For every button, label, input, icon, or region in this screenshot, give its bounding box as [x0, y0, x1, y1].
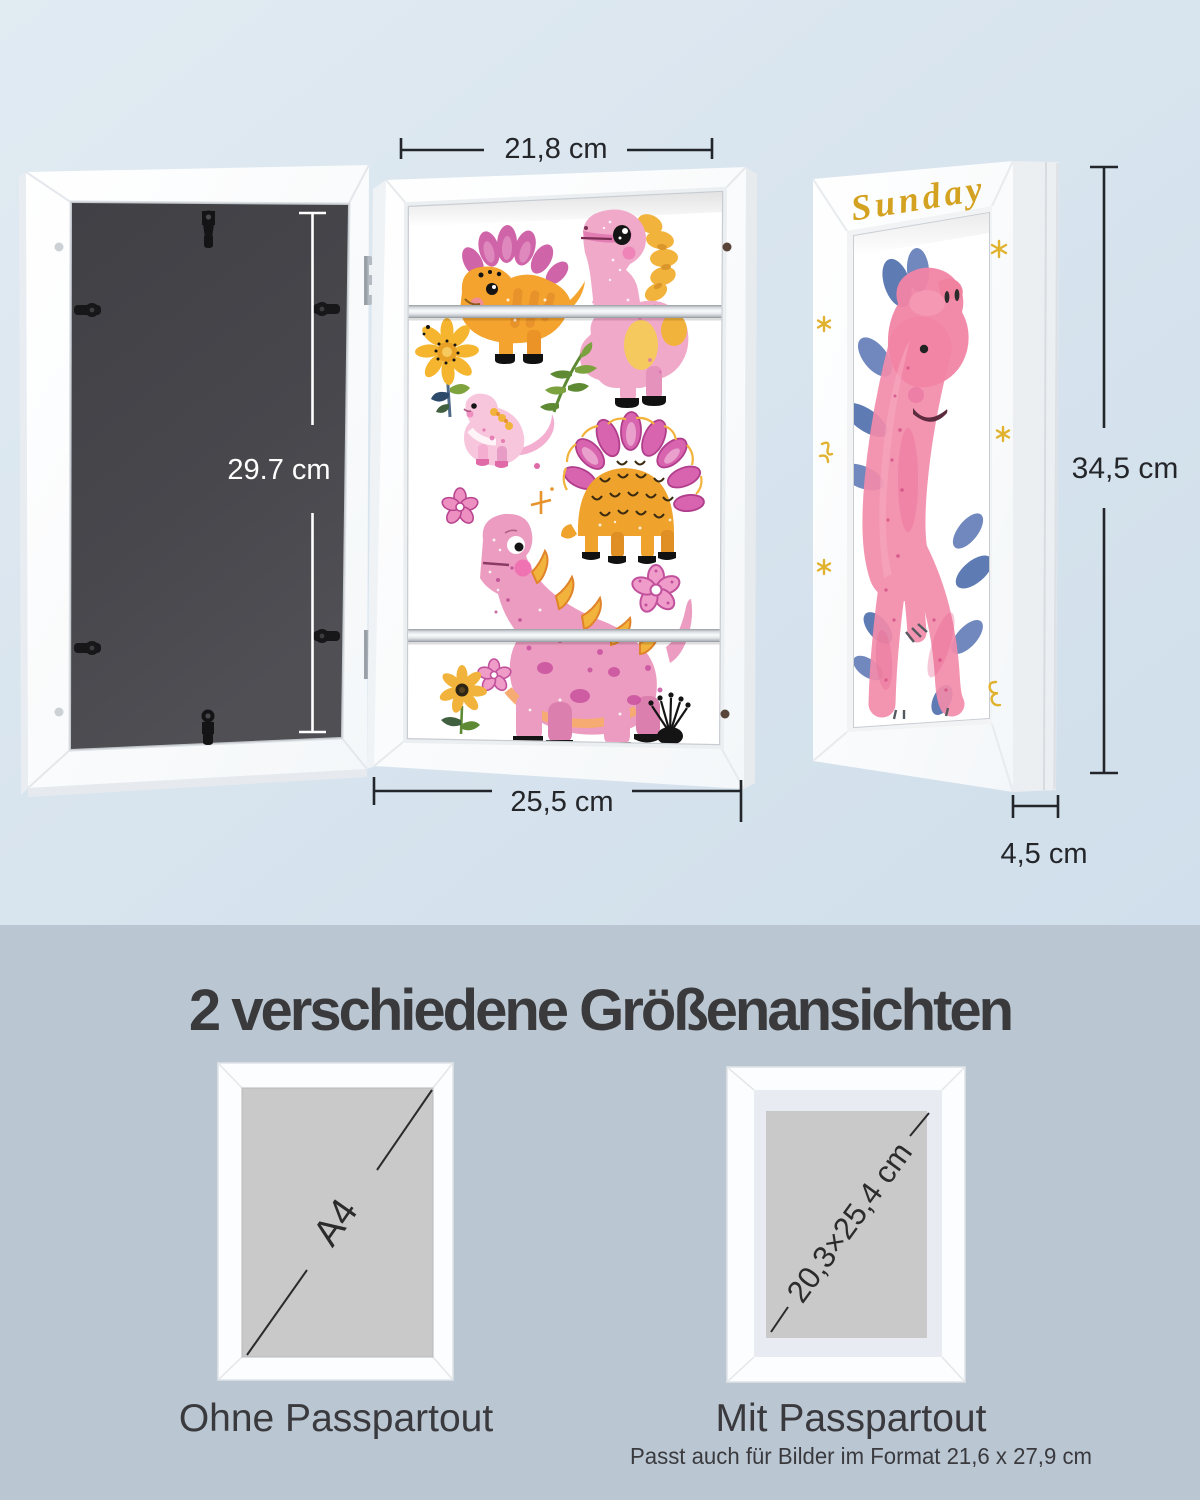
svg-text:2 verschiedene Größenansichten: 2 verschiedene Größenansichten [189, 978, 1011, 1043]
svg-text:34,5 cm: 34,5 cm [1072, 452, 1179, 485]
svg-text:4,5 cm: 4,5 cm [1000, 838, 1087, 870]
svg-text:Passt auch für Bilder im Forma: Passt auch für Bilder im Format 21,6 x 2… [630, 1443, 1092, 1469]
svg-text:25,5 cm: 25,5 cm [510, 786, 613, 818]
svg-text:29.7 cm: 29.7 cm [227, 454, 330, 486]
svg-text:Ohne Passpartout: Ohne Passpartout [179, 1397, 494, 1440]
svg-text:21,8 cm: 21,8 cm [504, 133, 607, 165]
svg-text:Mit Passpartout: Mit Passpartout [716, 1397, 987, 1440]
